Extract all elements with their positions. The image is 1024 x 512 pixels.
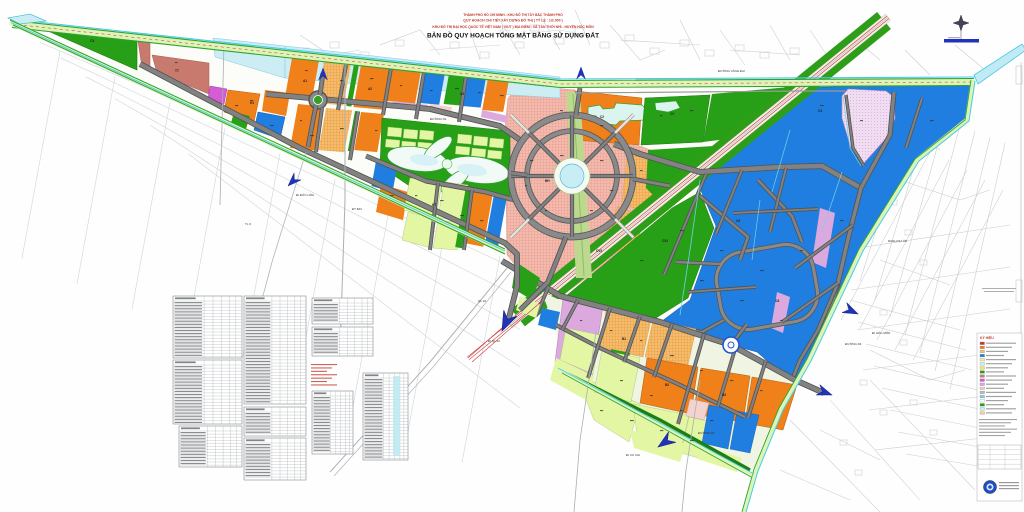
svg-text:B1: B1 bbox=[622, 337, 626, 341]
svg-text:THÀNH PHỐ HỒ CHÍ MINH - KHU: THÀNH PHỐ HỒ CHÍ MINH - KHU ĐÔ THỊ TÂY B… bbox=[463, 12, 563, 17]
svg-text:ĐH: ĐH bbox=[545, 179, 550, 183]
svg-text:B3: B3 bbox=[722, 393, 726, 397]
svg-text:ĐI ĐỨC HÒA: ĐI ĐỨC HÒA bbox=[296, 192, 314, 197]
svg-text:KHU ĐÔ THỊ ĐẠI HỌC QUỐC TẾ VIỆ: KHU ĐÔ THỊ ĐẠI HỌC QUỐC TẾ VIỆT NAM ( VI… bbox=[432, 24, 594, 29]
svg-text:QUY HOẠCH CHI TIẾT XÂY DỰNG ĐÔ: QUY HOẠCH CHI TIẾT XÂY DỰNG ĐÔ THỊ ( TỶ … bbox=[463, 18, 562, 23]
svg-text:O2: O2 bbox=[736, 219, 740, 223]
svg-text:ĐƯỜNG VÀNH ĐAI: ĐƯỜNG VÀNH ĐAI bbox=[718, 68, 745, 73]
svg-text:ĐƯỜNG D4: ĐƯỜNG D4 bbox=[845, 341, 862, 346]
svg-text:ĐƯỜNG D2: ĐƯỜNG D2 bbox=[698, 430, 715, 435]
svg-text:RANH DỰ ÁN: RANH DỰ ÁN bbox=[888, 239, 907, 243]
svg-text:CV2: CV2 bbox=[596, 249, 602, 253]
svg-text:TL 9: TL 9 bbox=[245, 222, 251, 226]
svg-text:ĐI QL 22: ĐI QL 22 bbox=[488, 339, 500, 343]
svg-text:A3: A3 bbox=[460, 92, 464, 96]
svg-text:A1: A1 bbox=[303, 79, 307, 83]
svg-text:KÝ HIỆU: KÝ HIỆU bbox=[980, 335, 994, 340]
svg-text:TT: TT bbox=[175, 69, 179, 73]
svg-text:O3: O3 bbox=[775, 299, 779, 303]
svg-text:C2: C2 bbox=[600, 115, 604, 119]
svg-text:ĐI CỦ CHI: ĐI CỦ CHI bbox=[626, 452, 640, 457]
svg-text:KT: KT bbox=[432, 203, 436, 207]
svg-text:B2: B2 bbox=[665, 383, 669, 387]
svg-text:ĐI HÓC MÔN: ĐI HÓC MÔN bbox=[872, 330, 890, 335]
svg-text:ĐƯỜNG N1: ĐƯỜNG N1 bbox=[430, 116, 447, 121]
svg-text:ĐT 823: ĐT 823 bbox=[352, 207, 362, 211]
svg-text:QL 22: QL 22 bbox=[478, 299, 486, 303]
svg-text:O1: O1 bbox=[818, 109, 822, 113]
svg-text:A2: A2 bbox=[368, 87, 372, 91]
svg-text:CX2: CX2 bbox=[662, 239, 668, 243]
svg-text:H1: H1 bbox=[250, 101, 254, 105]
